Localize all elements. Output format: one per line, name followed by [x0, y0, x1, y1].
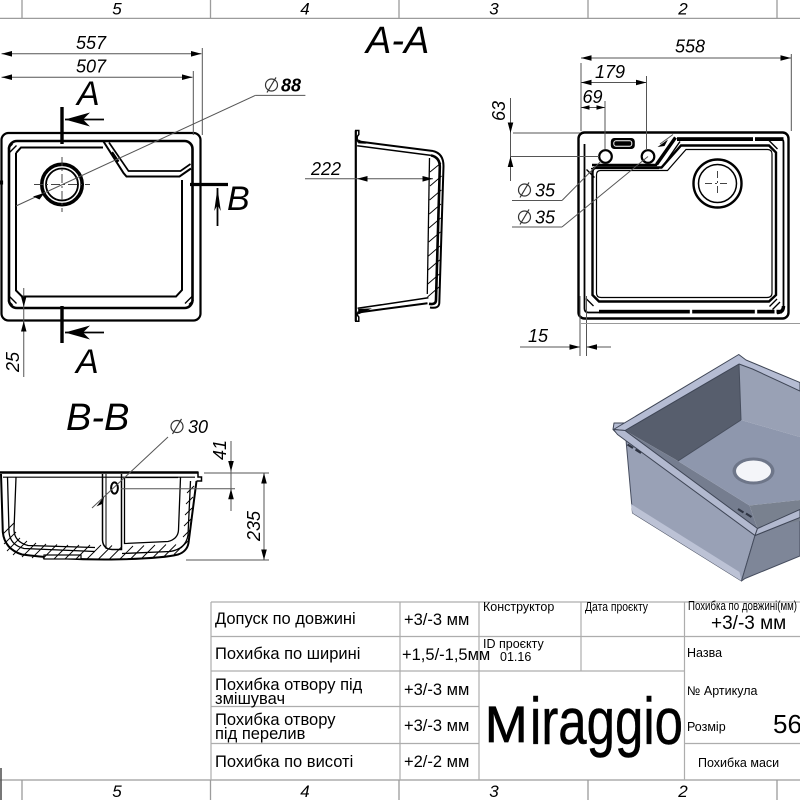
svg-text:змішувач: змішувач: [215, 690, 285, 708]
svg-text:558: 558: [675, 37, 705, 57]
svg-text:560: 560: [773, 709, 800, 739]
svg-text:+3/-3 мм: +3/-3 мм: [711, 613, 786, 634]
svg-text:88: 88: [281, 76, 301, 96]
svg-text:M: M: [485, 696, 527, 753]
svg-text:63: 63: [489, 101, 509, 121]
svg-text:Похибка по довжині(мм): Похибка по довжині(мм): [688, 599, 797, 613]
svg-text:35: 35: [535, 181, 556, 201]
svg-text:557: 557: [76, 33, 107, 53]
svg-text:Похибка маси: Похибка маси: [698, 756, 779, 770]
svg-text:+3/-3 мм: +3/-3 мм: [404, 611, 469, 629]
svg-text:Похибка по ширині: Похибка по ширині: [215, 645, 360, 663]
svg-text:Допуск по довжині: Допуск по довжині: [215, 610, 356, 628]
svg-text:179: 179: [595, 62, 625, 82]
svg-text:+3/-3 мм: +3/-3 мм: [404, 717, 469, 735]
svg-text:35: 35: [535, 208, 556, 228]
svg-text:Конструктор: Конструктор: [483, 600, 554, 614]
svg-text:під перелив: під перелив: [215, 725, 306, 743]
svg-text:5: 5: [112, 782, 122, 800]
svg-text:41: 41: [210, 440, 230, 460]
svg-text:507: 507: [76, 57, 107, 77]
svg-text:Назва: Назва: [687, 646, 722, 660]
svg-text:A: A: [74, 343, 99, 381]
svg-text:+3/-3 мм: +3/-3 мм: [404, 681, 469, 699]
svg-text:222: 222: [310, 159, 341, 179]
svg-text:25: 25: [3, 351, 23, 373]
svg-text:3: 3: [489, 782, 499, 800]
svg-text:3: 3: [489, 0, 499, 19]
svg-text:30: 30: [188, 417, 208, 437]
svg-text:Похибка по висоті: Похибка по висоті: [215, 753, 353, 771]
svg-text:+1,5/-1,5мм: +1,5/-1,5мм: [402, 646, 490, 664]
svg-text:2: 2: [677, 782, 688, 800]
svg-text:01.16: 01.16: [500, 650, 531, 664]
svg-text:4: 4: [300, 0, 309, 19]
svg-text:ID проєкту: ID проєкту: [483, 637, 544, 651]
svg-text:2: 2: [677, 0, 688, 19]
svg-text:Дата проєкту: Дата проєкту: [585, 600, 649, 614]
svg-text:4: 4: [300, 782, 309, 800]
svg-text:№ Артикула: № Артикула: [687, 684, 757, 698]
svg-text:69: 69: [582, 87, 602, 107]
svg-text:A: A: [75, 75, 100, 113]
svg-text:B: B: [227, 180, 250, 218]
svg-text:iraggio: iraggio: [530, 684, 683, 758]
svg-text:Розмір: Розмір: [687, 720, 726, 734]
svg-text:A-A: A-A: [364, 20, 429, 62]
svg-text:5: 5: [112, 0, 122, 19]
svg-text:235: 235: [244, 510, 264, 542]
svg-text:B-B: B-B: [66, 397, 129, 439]
svg-text:+2/-2 мм: +2/-2 мм: [404, 753, 469, 771]
svg-text:15: 15: [528, 326, 549, 346]
